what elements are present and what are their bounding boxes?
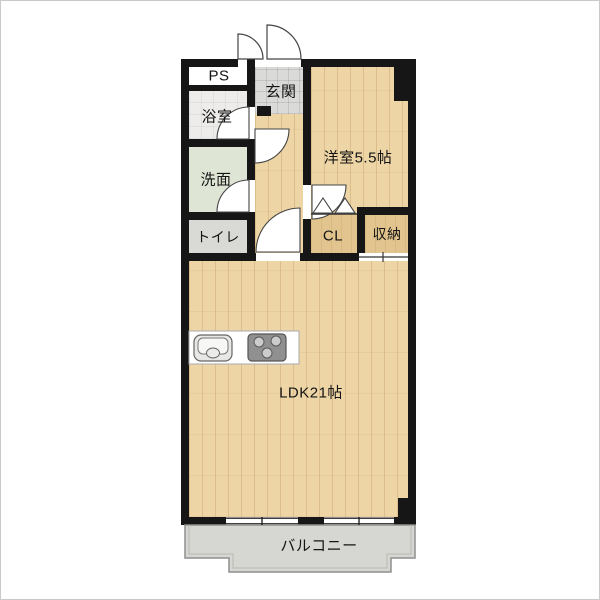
label-washroom: 洗面 [200,169,231,190]
label-ldk: LDK21帖 [279,382,343,403]
hallway-floor [255,114,303,253]
wall-cl-storage-sep [357,214,365,253]
wall-washroom-bottom [181,212,255,220]
pillar-bottom-right [398,498,416,525]
label-entrance: 玄関 [265,81,296,102]
wall-hall-left-1 [247,59,255,107]
wall-right [408,59,416,525]
wall-ldk-top-1 [181,253,256,261]
wall-left [181,59,189,525]
bath-door-opening [247,107,255,139]
label-storage: 収納 [373,224,402,244]
label-ps: PS [208,68,229,85]
wall-top-left [181,59,238,67]
western-door-opening [303,185,311,219]
wall-ldk-top-2 [300,253,359,261]
label-bath: 浴室 [201,106,232,127]
wall-hall-left-2 [247,139,255,180]
label-toilet: トイレ [196,227,240,247]
floorplan-canvas: PS 浴室 洗面 トイレ 玄関 洋室5.5帖 CL 収納 LDK21帖 バルコニ… [0,0,600,600]
label-western: 洋室5.5帖 [324,147,393,168]
entrance-door-main [267,25,301,59]
label-balcony: バルコニー [280,535,357,556]
entrance-door-small [238,34,263,59]
wall-hall-right-1 [303,59,311,185]
wall-entrance-step [257,106,271,116]
label-closet: CL [323,228,343,245]
pillar-top-right [394,59,416,101]
washroom-door-opening [247,180,255,212]
wall-bottom [181,517,416,525]
wall-bath-bottom [181,139,255,147]
wall-ps-bottom [181,85,255,91]
